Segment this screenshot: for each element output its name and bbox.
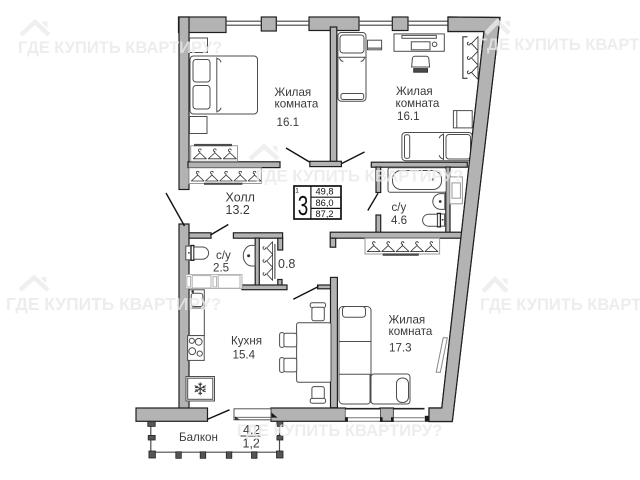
svg-text:с/у: с/у <box>216 249 231 262</box>
svg-text:ГДЕ КУПИТЬ КВАРТИРУ?: ГДЕ КУПИТЬ КВАРТИРУ? <box>256 167 464 186</box>
svg-text:Балкон: Балкон <box>179 431 218 444</box>
svg-text:86,0: 86,0 <box>316 198 334 208</box>
svg-text:комната: комната <box>389 325 433 338</box>
svg-text:ГДЕ КУПИТЬ КВАРТИРУ?: ГДЕ КУПИТЬ КВАРТИРУ? <box>237 421 442 440</box>
svg-text:комната: комната <box>396 97 440 110</box>
svg-text:комната: комната <box>275 98 319 111</box>
svg-text:16.1: 16.1 <box>397 110 420 123</box>
svg-text:ГДЕ КУПИТЬ КВАРТИРУ?: ГДЕ КУПИТЬ КВАРТИРУ? <box>6 294 221 314</box>
svg-text:13.2: 13.2 <box>226 203 250 217</box>
svg-text:4.6: 4.6 <box>391 214 407 227</box>
svg-text:15.4: 15.4 <box>233 349 256 362</box>
svg-text:ГДЕ КУПИТЬ КВАРТИРУ?: ГДЕ КУПИТЬ КВАРТИРУ? <box>478 36 640 54</box>
svg-text:2.5: 2.5 <box>213 262 229 275</box>
svg-text:3: 3 <box>298 190 309 221</box>
svg-text:16.1: 16.1 <box>277 116 300 129</box>
svg-text:ГДЕ КУПИТЬ КВАРТИРУ?: ГДЕ КУПИТЬ КВАРТИРУ? <box>480 296 640 314</box>
svg-text:87,2: 87,2 <box>316 209 334 219</box>
svg-text:с/у: с/у <box>392 202 407 214</box>
svg-text:49,8: 49,8 <box>316 187 334 197</box>
svg-text:Кухня: Кухня <box>231 335 262 348</box>
svg-text:ГДЕ КУПИТЬ КВАРТИРУ?: ГДЕ КУПИТЬ КВАРТИРУ? <box>18 39 222 57</box>
svg-text:0.8: 0.8 <box>278 257 295 271</box>
svg-text:17.3: 17.3 <box>389 342 412 355</box>
